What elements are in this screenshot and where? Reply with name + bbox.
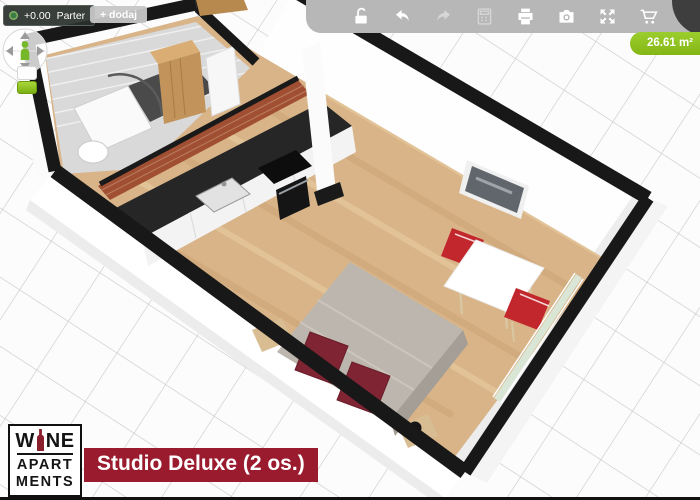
faucet [222,182,227,187]
cart-icon[interactable] [638,6,660,28]
room-caption: Studio Deluxe (2 os.) [84,448,318,482]
toilet[interactable] [78,141,108,163]
zoom-slider-track[interactable] [17,81,37,94]
add-level-button[interactable]: + dodaj [90,6,147,23]
main-toolbar [306,0,700,33]
bathroom-door[interactable] [206,46,240,116]
redo-icon[interactable] [432,6,454,28]
undo-icon[interactable] [391,6,413,28]
walk-mode-person-icon[interactable] [21,41,30,60]
logo-line2: APART [12,457,78,474]
level-selector[interactable]: +0.00 Parter [3,5,95,26]
fullscreen-icon[interactable] [597,6,619,28]
level-visibility-icon [9,11,18,20]
camera-icon[interactable] [556,6,578,28]
print-icon[interactable] [515,6,537,28]
lock-open-icon[interactable] [350,6,372,28]
area-badge: 26.61 m² [630,32,700,55]
logo-line1: W NE [12,429,78,451]
wine-bottle-icon [36,429,45,451]
logo-divider [17,453,73,455]
logo-ne: NE [46,431,75,451]
logo-line3: MENTS [12,474,78,491]
zoom-slider[interactable] [17,66,37,94]
floor-plan-canvas[interactable] [0,0,700,500]
calculator-icon[interactable] [473,6,495,28]
zoom-slider-handle[interactable] [17,66,37,80]
wine-apartments-logo: W NE APART MENTS [8,424,82,497]
logo-w: W [15,431,34,451]
floor-planner-app: +0.00 Parter + dodaj [0,0,700,500]
level-elevation: +0.00 [24,10,51,22]
level-name: Parter [57,10,86,22]
